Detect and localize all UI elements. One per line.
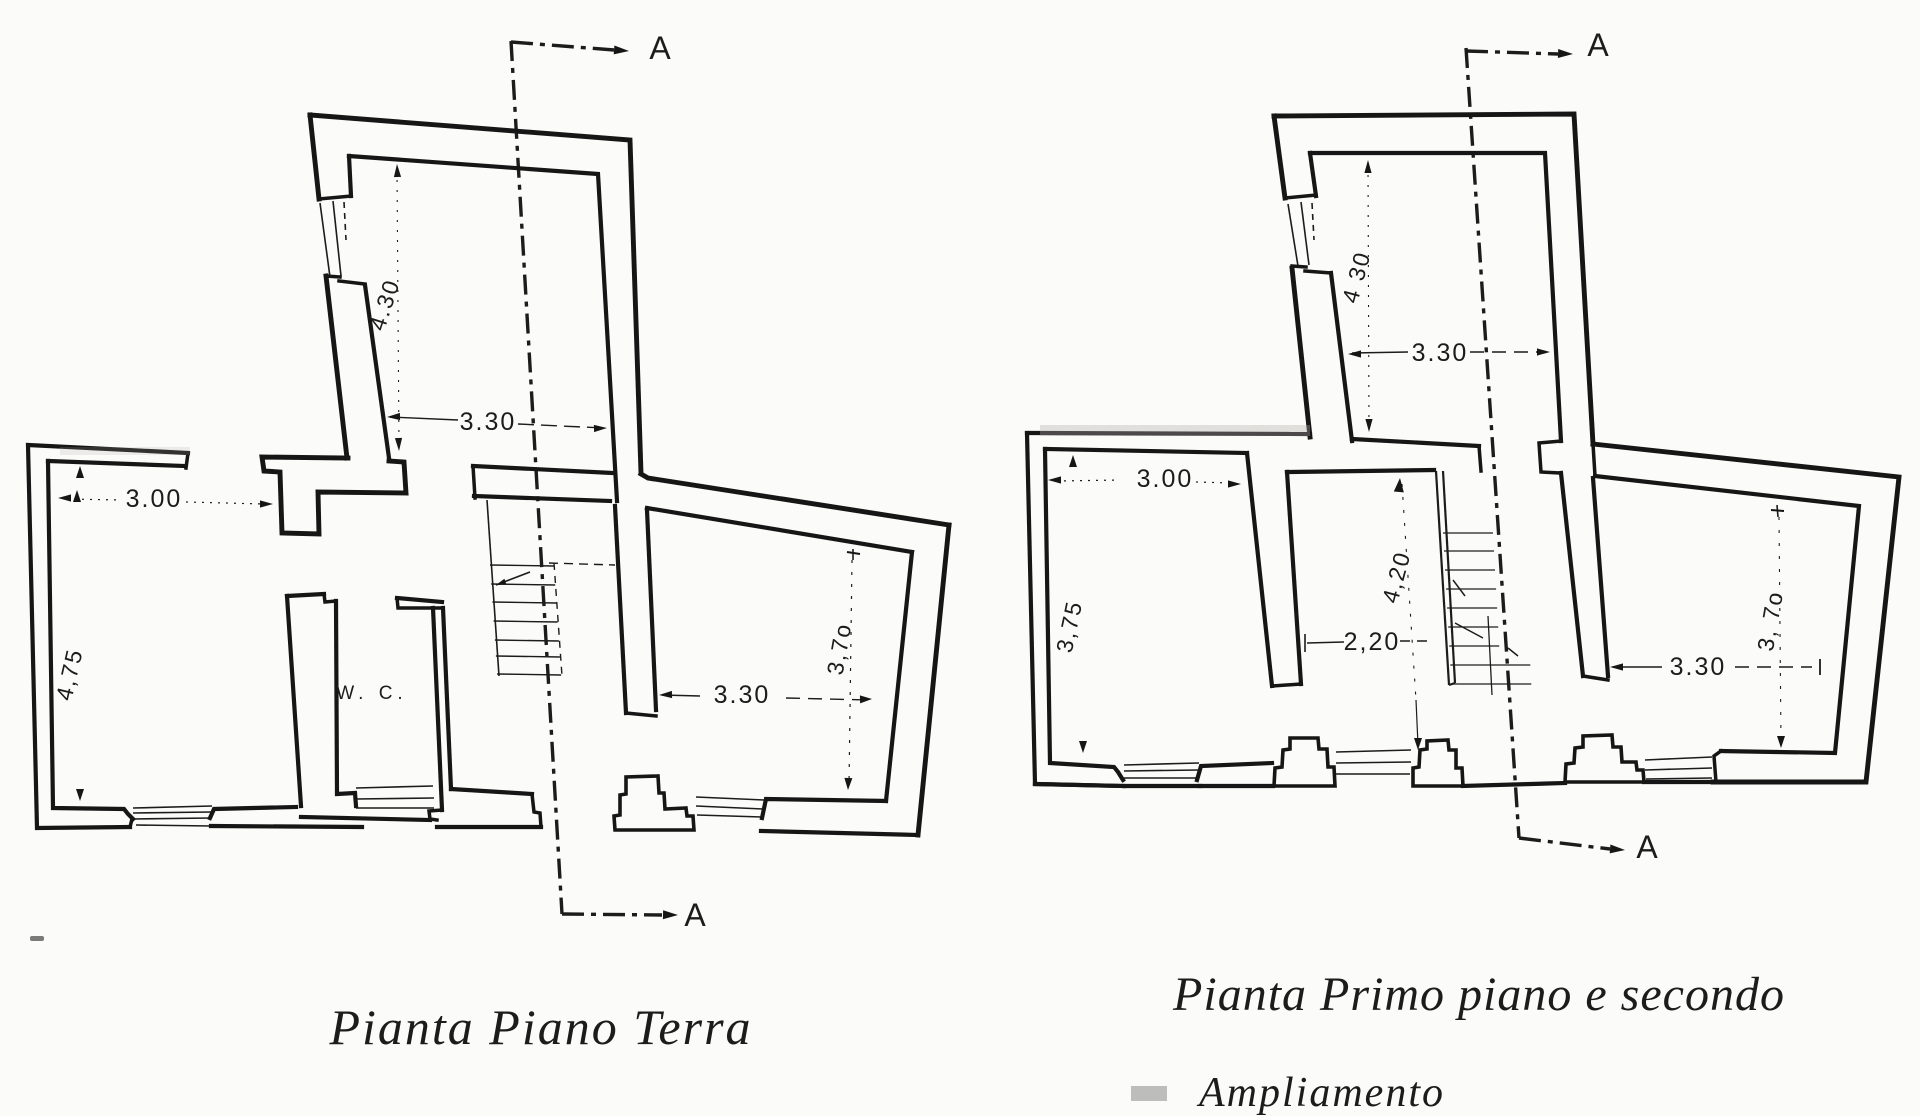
svg-text:W. C.: W. C. [336,683,407,704]
svg-text:A: A [684,897,706,933]
svg-text:3.00: 3.00 [1137,465,1194,493]
svg-text:Ampliamento: Ampliamento [1196,1070,1445,1116]
svg-text:2,20: 2,20 [1344,628,1401,656]
svg-text:3.30: 3.30 [714,681,771,709]
svg-text:A: A [649,30,671,66]
svg-text:3.00: 3.00 [126,485,183,513]
svg-text:3.30: 3.30 [460,408,517,436]
svg-text:A: A [1587,27,1609,63]
svg-text:3.30: 3.30 [1412,339,1469,367]
svg-text:A: A [1636,829,1658,865]
svg-text:Pianta Piano Terra: Pianta Piano Terra [328,999,752,1055]
svg-text:Pianta Primo piano e secondo: Pianta Primo piano e secondo [1172,968,1785,1021]
svg-text:3.30: 3.30 [1670,653,1727,681]
